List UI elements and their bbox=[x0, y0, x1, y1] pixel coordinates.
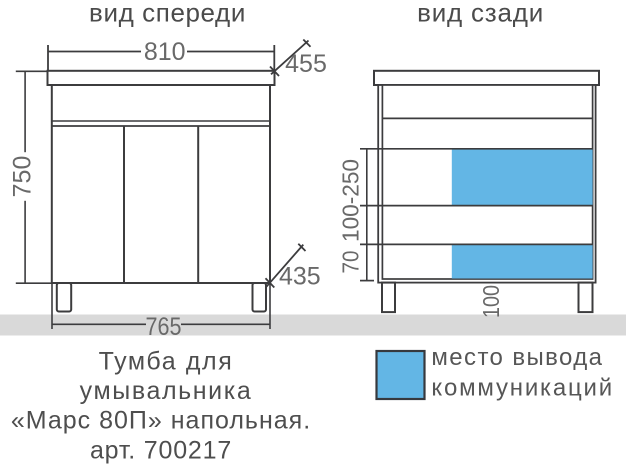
svg-text:«Марс 80П» напольная.: «Марс 80П» напольная. bbox=[11, 407, 311, 435]
svg-text:100-250: 100-250 bbox=[338, 159, 364, 242]
svg-text:810: 810 bbox=[144, 38, 186, 66]
svg-text:вид спереди: вид спереди bbox=[89, 0, 246, 28]
svg-text:70: 70 bbox=[338, 251, 364, 274]
svg-text:умывальника: умывальника bbox=[80, 377, 253, 405]
svg-text:коммуникаций: коммуникаций bbox=[431, 375, 614, 402]
svg-text:765: 765 bbox=[146, 313, 182, 341]
svg-text:750: 750 bbox=[9, 156, 37, 198]
svg-text:435: 435 bbox=[279, 263, 321, 291]
svg-text:арт. 700217: арт. 700217 bbox=[90, 437, 232, 465]
svg-text:455: 455 bbox=[285, 50, 327, 78]
svg-text:100: 100 bbox=[478, 285, 504, 318]
svg-text:место вывода: место вывода bbox=[431, 344, 603, 371]
svg-text:Тумба для: Тумба для bbox=[99, 348, 234, 376]
svg-text:вид сзади: вид сзади bbox=[417, 0, 544, 28]
